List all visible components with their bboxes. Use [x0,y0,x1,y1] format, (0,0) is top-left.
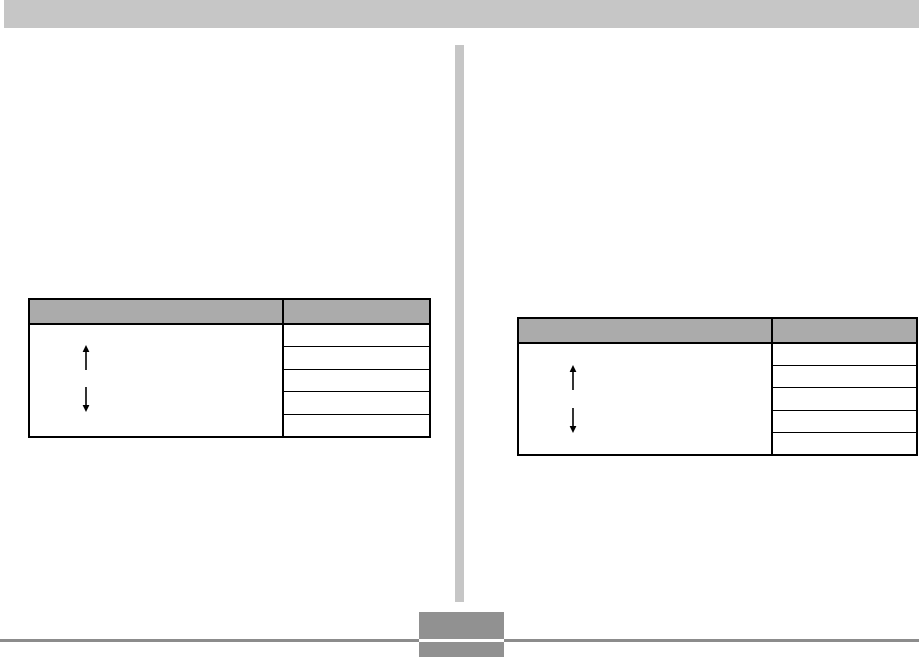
table-row [773,433,916,454]
table-header-cell [519,319,773,342]
page-number-tab-lower [419,642,504,657]
table-span-cell [519,344,773,454]
footer-rule-right [504,639,919,642]
table-header-cell [30,300,284,323]
down-arrow-icon [80,386,92,412]
footer-rule-left [0,639,419,642]
top-header-band [4,0,919,28]
table-span-cell [30,325,284,436]
table-row-column [773,344,916,454]
table-header-cell [773,319,916,342]
table-row [284,370,429,392]
table-row [284,347,429,369]
table-body [30,325,429,436]
column-divider-strip [455,45,464,602]
table-header-row [519,319,916,344]
down-arrow-icon [567,407,579,433]
table-row [284,325,429,347]
page-number-tab [419,612,504,639]
table-row-column [284,325,429,436]
table-row [773,411,916,433]
right-table [517,317,918,456]
up-arrow-icon [80,345,92,371]
table-row [284,415,429,436]
table-header-cell [284,300,429,323]
table-row [284,392,429,414]
table-row [773,366,916,388]
document-page [0,0,919,657]
up-arrow-icon [567,365,579,391]
table-header-row [30,300,429,325]
left-table [28,298,431,438]
table-body [519,344,916,454]
table-row [773,344,916,366]
table-row [773,388,916,410]
